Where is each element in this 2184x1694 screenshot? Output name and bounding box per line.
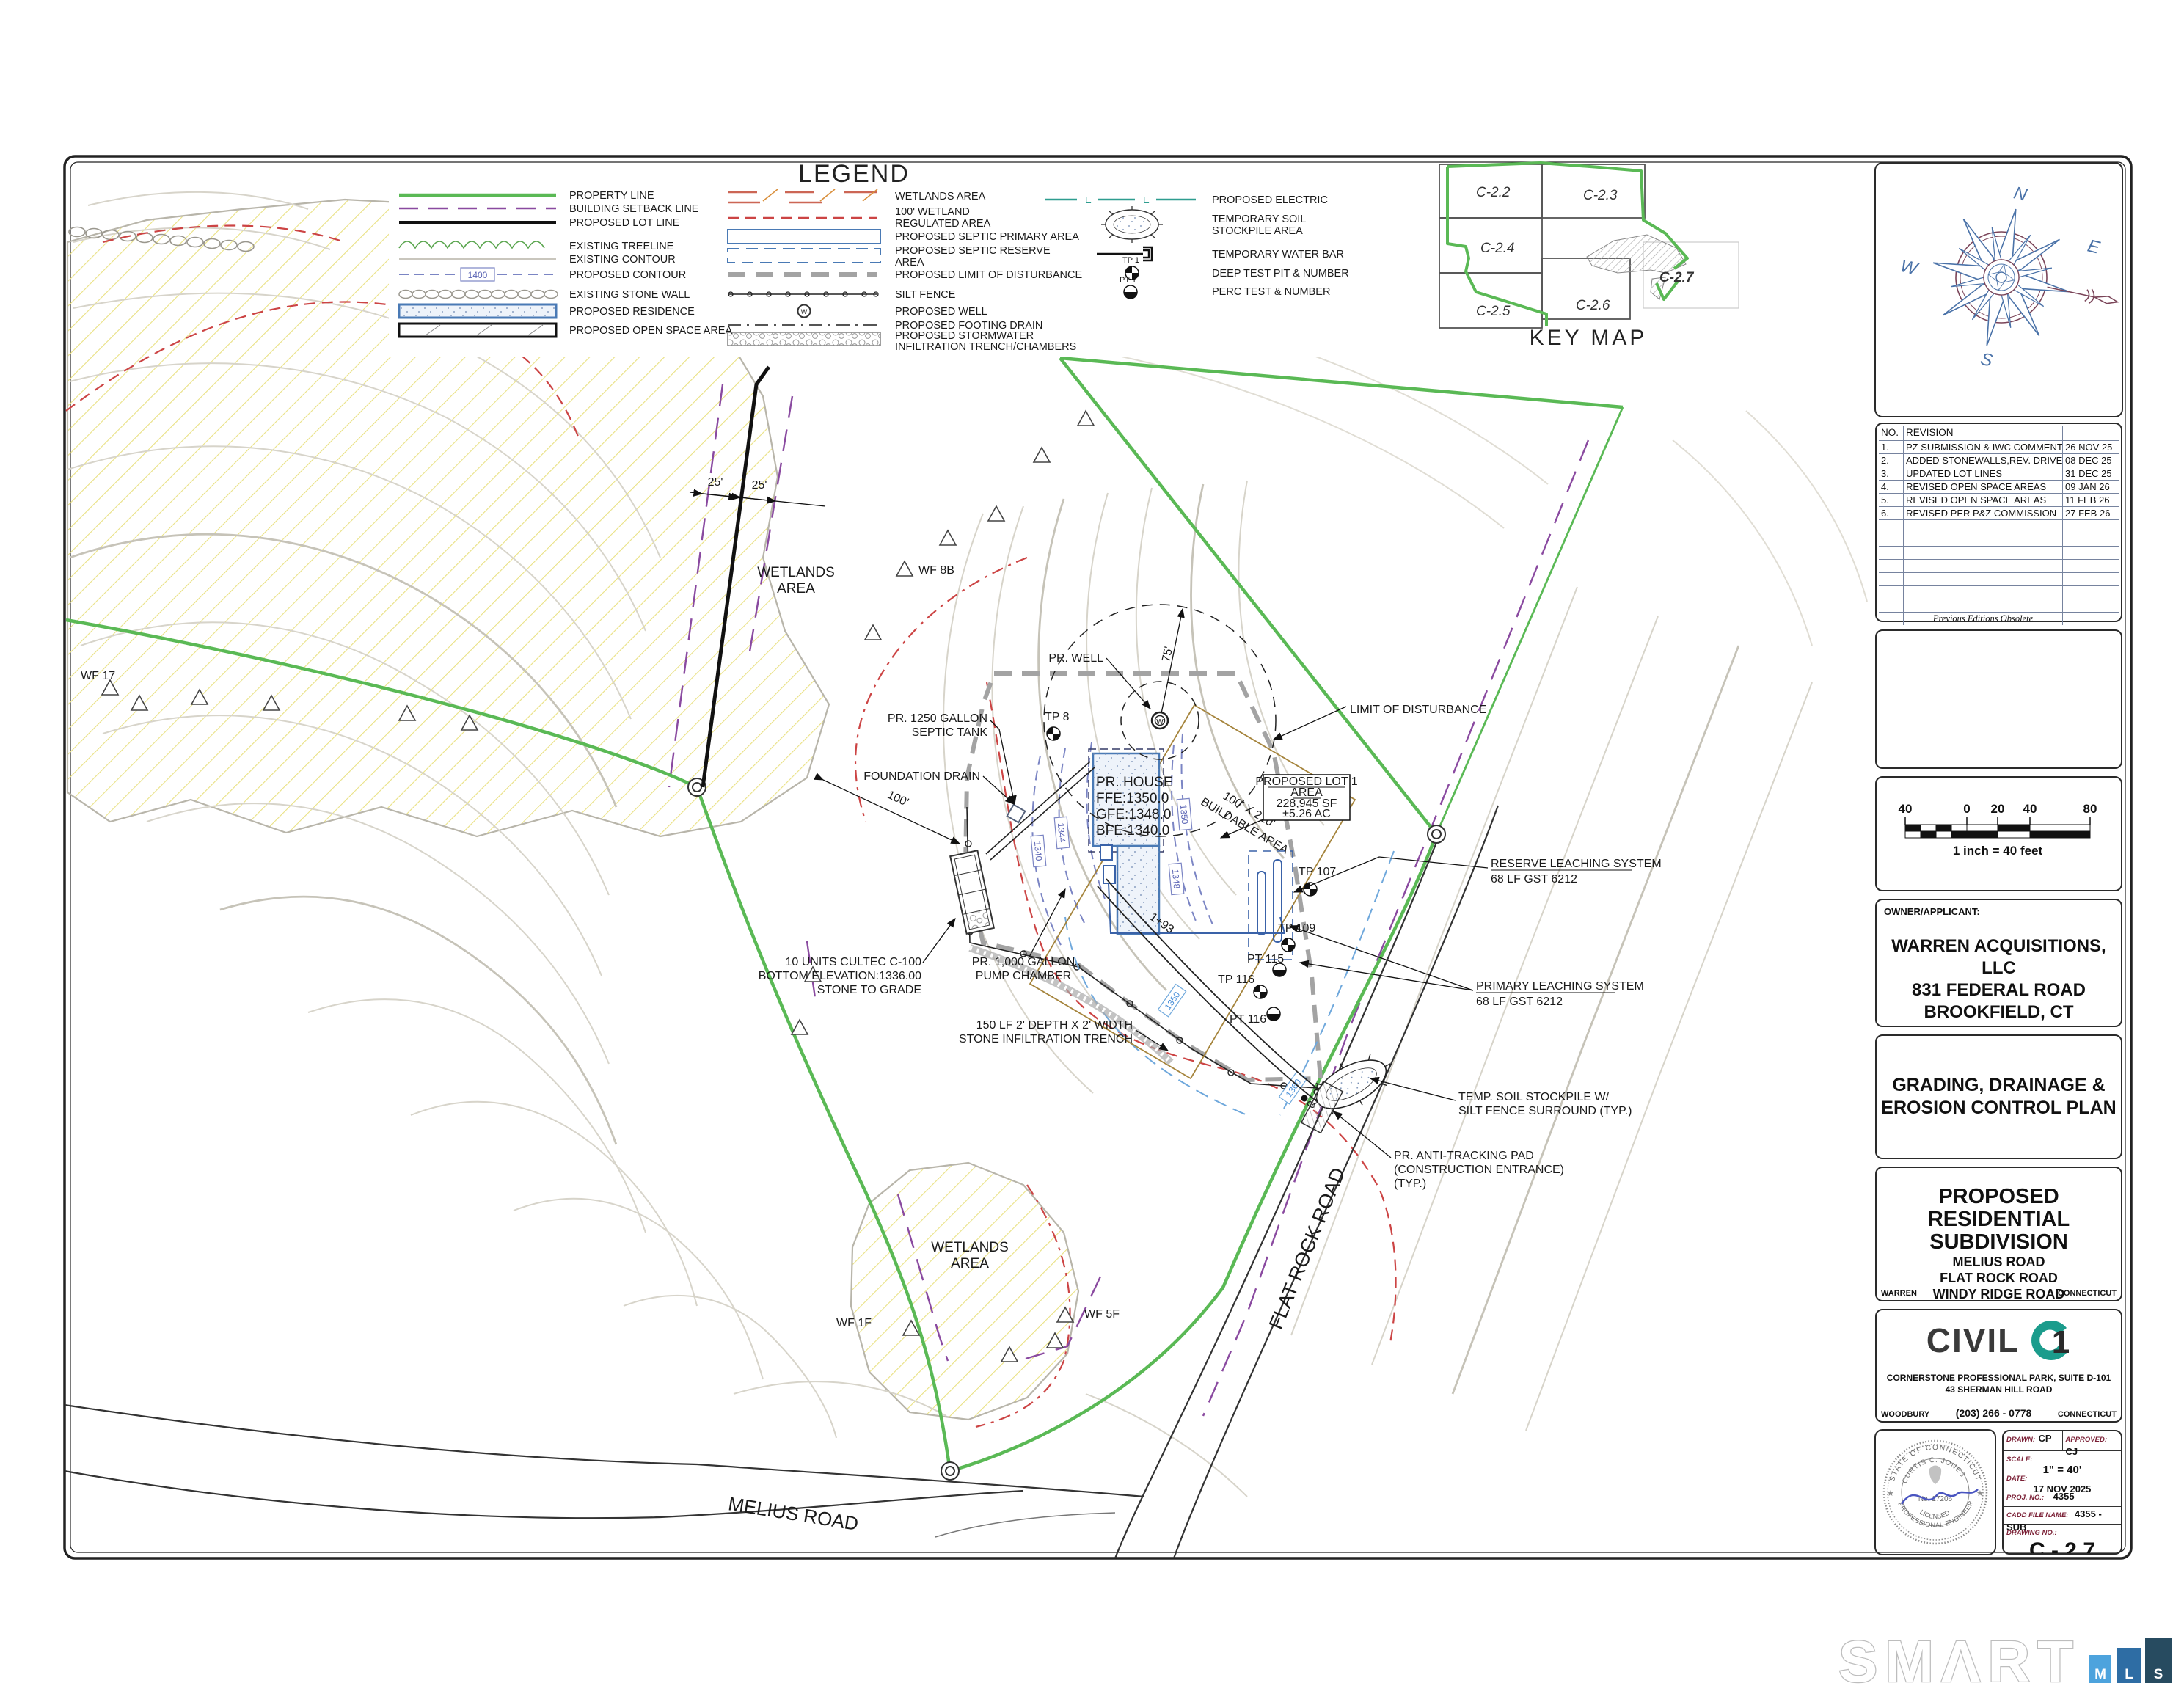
- legend-silt-fence: SILT FENCE: [895, 289, 956, 301]
- melius-road-label: MELIUS ROAD: [727, 1492, 861, 1535]
- legend: LEGEND 1400 PROP: [389, 160, 1416, 357]
- rev-desc: REVISED PER P&Z COMMISSION: [1904, 507, 2063, 520]
- antitrack-1: PR. ANTI-TRACKING PAD: [1394, 1150, 1534, 1162]
- legend-well: PROPOSED WELL: [895, 306, 987, 318]
- key-tile-c23: C-2.3: [1583, 188, 1618, 203]
- wetlands-label-1b: AREA: [777, 581, 815, 596]
- key-tile-c26: C-2.6: [1576, 298, 1610, 313]
- proj-value: 4355: [2053, 1491, 2075, 1502]
- septic-tank-label-2: SEPTIC TANK: [912, 726, 988, 739]
- trench-2: STONE INFILTRATION TRENCH: [959, 1033, 1133, 1045]
- compass-box: N S W E: [1875, 163, 2132, 417]
- dim-25-right: 25': [752, 479, 767, 492]
- legend-property-line: PROPERTY LINE: [569, 190, 654, 202]
- cultec-1: 10 UNITS CULTEC C-100: [785, 956, 921, 968]
- roads: [65, 806, 1498, 1558]
- rev-no: 5.: [1879, 494, 1904, 507]
- well-letter: W: [1156, 718, 1164, 726]
- key-map-title: KEY MAP: [1530, 326, 1648, 350]
- legend-septic-primary: PROPOSED SEPTIC PRIMARY AREA: [895, 231, 1079, 243]
- drawing-no-value: C - 2.7: [2006, 1538, 2118, 1555]
- legend-stockpile-2: STOCKPILE AREA: [1212, 225, 1303, 237]
- house-label: PR. HOUSE FFE:1350.0 GFE:1348.0 BFE:1340…: [1096, 775, 1173, 839]
- proj-label: PROJ. NO.:: [2006, 1494, 2044, 1502]
- firm-town: WOODBURY: [1881, 1410, 1929, 1419]
- firm-brand-word: CIVIL: [1926, 1321, 2020, 1360]
- project-line2: SUBDIVISION: [1877, 1231, 2121, 1254]
- legend-100-wetland-1: 100' WETLAND: [895, 206, 970, 218]
- scale-label: SCALE:: [2006, 1456, 2032, 1464]
- compass-w: W: [1899, 256, 1921, 280]
- rev-date: 27 FEB 26: [2063, 507, 2119, 520]
- key-tile-c22: C-2.2: [1476, 185, 1511, 200]
- flag-wf1f: WF 1F: [836, 1317, 872, 1329]
- smart-wordmark: SMΛRT: [1838, 1629, 2081, 1690]
- lod-label: LIMIT OF DISTURBANCE: [1350, 704, 1486, 716]
- legend-deep-test: DEEP TEST PIT & NUMBER: [1212, 268, 1349, 280]
- compass-e: E: [2086, 236, 2103, 258]
- svg-text:LICENSED: LICENSED: [1918, 1508, 1951, 1520]
- stockpile-2: SILT FENCE SURROUND (TYP.): [1458, 1105, 1632, 1117]
- legend-septic-reserve-2: AREA: [895, 257, 924, 269]
- legend-stormwater-2: INFILTRATION TRENCH/CHAMBERS: [895, 341, 1076, 353]
- owner-heading: OWNER/APPLICANT:: [1884, 906, 1980, 917]
- key-tile-c25: C-2.5: [1476, 304, 1511, 319]
- approved-label: APPROVED:: [2066, 1436, 2107, 1444]
- scale-caption: 1 inch = 40 feet: [1953, 844, 2043, 858]
- rev-desc: PZ SUBMISSION & IWC COMMENTS: [1904, 441, 2063, 454]
- foundation-drain-label: FOUNDATION DRAIN: [863, 770, 980, 783]
- scale-bar: 40 0 20 40 80 1 inch = 40 feet: [1877, 778, 2121, 890]
- septic-tank-symbol: [1007, 805, 1026, 823]
- wetlands-label-2a: WETLANDS: [931, 1240, 1009, 1255]
- cultec-chambers: [950, 850, 994, 934]
- firm-phone: (203) 266 - 0778: [1956, 1407, 2032, 1419]
- owner-city: BROOKFIELD, CT: [1877, 1001, 2121, 1023]
- septic-tank-label-1: PR. 1250 GALLON: [888, 712, 987, 725]
- owner-name: WARREN ACQUISITIONS, LLC: [1877, 935, 2121, 979]
- scale-tick-20: 20: [1991, 802, 2005, 816]
- project-town: WARREN: [1881, 1289, 1917, 1298]
- wetlands-label-1a: WETLANDS: [757, 565, 835, 580]
- legend-water-bar: TEMPORARY WATER BAR: [1212, 249, 1344, 260]
- well-radius-label: 75': [1160, 646, 1175, 663]
- firm-state: CONNECTICUT: [2058, 1410, 2117, 1419]
- legend-stormwater-1: PROPOSED STORMWATER: [895, 330, 1034, 342]
- sheet-title-line1: GRADING, DRAINAGE &: [1877, 1074, 2121, 1097]
- rev-date: 31 DEC 25: [2063, 467, 2119, 481]
- legend-perc-test: PERC TEST & NUMBER: [1212, 286, 1330, 298]
- rev-col-no: NO.: [1879, 426, 1904, 441]
- pump-1: PR. 1,000 GALLON: [972, 956, 1075, 968]
- house-name: PR. HOUSE: [1096, 775, 1173, 790]
- reserve-leach-2: 68 LF GST 6212: [1491, 873, 1577, 886]
- revision-table: NO. REVISION 1. PZ SUBMISSION & IWC COMM…: [1879, 426, 2119, 625]
- sheet-title-box: GRADING, DRAINAGE & EROSION CONTROL PLAN: [1875, 1034, 2122, 1159]
- contour-tag-1350: 1350: [1178, 804, 1190, 825]
- rev-no: 6.: [1879, 507, 1904, 520]
- rev-date: 08 DEC 25: [2063, 454, 2119, 467]
- project-state: CONNECTICUT: [2058, 1289, 2117, 1298]
- drawn-label: DRAWN:: [2006, 1436, 2035, 1444]
- stockpile-1: TEMP. SOIL STOCKPILE W/: [1458, 1091, 1610, 1103]
- legend-electric: PROPOSED ELECTRIC: [1212, 194, 1328, 206]
- rev-date: 11 FEB 26: [2063, 494, 2119, 507]
- drawing-no-label: DRAWING NO.:: [2006, 1529, 2057, 1537]
- scale-bar-box: 40 0 20 40 80 1 inch = 40 feet: [1875, 776, 2122, 891]
- pump-2: PUMP CHAMBER: [976, 970, 1071, 982]
- project-road-1: MELIUS ROAD: [1877, 1254, 2121, 1270]
- legend-residence: PROPOSED RESIDENCE: [569, 306, 695, 318]
- pt116-label: PT 116: [1230, 1013, 1266, 1026]
- flag-wf17: WF 17: [81, 670, 115, 682]
- legend-e1: E: [1085, 194, 1092, 205]
- legend-title: LEGEND: [798, 160, 910, 188]
- engineer-seal-box: STATE OF CONNECTICUT CURTIS C. JONES LIC…: [1875, 1430, 1995, 1555]
- scale-tick-40l: 40: [1899, 802, 1913, 816]
- legend-pr-contour: PROPOSED CONTOUR: [569, 269, 686, 281]
- seal-crest: [1929, 1466, 1941, 1485]
- flag-wf5f: WF 5F: [1084, 1308, 1120, 1321]
- rev-footer: Previous Editions Obsolete: [1904, 613, 2063, 625]
- mls-letter-m: M: [2094, 1667, 2106, 1682]
- legend-e2: E: [1143, 194, 1150, 205]
- civil1-number: 1: [2052, 1324, 2070, 1360]
- smartmls-logo: SMΛRT M L S: [1838, 1629, 2172, 1690]
- legend-open-space: PROPOSED OPEN SPACE AREA: [569, 325, 732, 337]
- trench-1: 150 LF 2' DEPTH X 2' WIDTH: [976, 1019, 1133, 1032]
- project-road-2: FLAT ROCK ROAD: [1877, 1270, 2121, 1286]
- wetlands-area-hatch: [67, 200, 1078, 1420]
- rev-col-desc: REVISION: [1904, 426, 2063, 441]
- legend-ex-contour: EXISTING CONTOUR: [569, 254, 676, 266]
- scale-bar-checker: [1905, 825, 2090, 838]
- antitrack-2: (CONSTRUCTION ENTRANCE): [1394, 1164, 1564, 1176]
- project-line1: PROPOSED RESIDENTIAL: [1877, 1186, 2121, 1231]
- cadd-label: CADD FILE NAME:: [2006, 1511, 2068, 1519]
- cultec-2: BOTTOM ELEVATION:1336.00: [759, 970, 921, 982]
- compass-n: N: [2012, 183, 2029, 206]
- legend-stone-wall: EXISTING STONE WALL: [569, 289, 690, 301]
- plan-sheet: 1340 1344 1348 1350 1350 1360 100' X 210…: [0, 0, 2184, 1690]
- firm-logo: CIVIL 1: [1877, 1318, 2121, 1363]
- legend-stockpile-1: TEMPORARY SOIL: [1212, 213, 1306, 225]
- tp116-label: TP 116: [1218, 974, 1254, 986]
- pr-well-label: PR. WELL: [1048, 652, 1103, 665]
- firm-addr2: 43 SHERMAN HILL ROAD: [1877, 1384, 2121, 1395]
- dim-100: 100': [885, 789, 910, 809]
- scale-tick-40r: 40: [2023, 802, 2037, 816]
- firm-addr1: CORNERSTONE PROFESSIONAL PARK, SUITE D-1…: [1877, 1372, 2121, 1384]
- legend-lot-line: PROPOSED LOT LINE: [569, 217, 680, 229]
- wetlands-label-2b: AREA: [951, 1256, 989, 1271]
- legend-pt-tag: PT 1: [1120, 276, 1136, 285]
- flat-rock-road-label: FLAT ROCK ROAD: [1265, 1164, 1350, 1332]
- drawn-value: CP: [2039, 1433, 2052, 1444]
- house-gfe: GFE:1348.0: [1096, 807, 1171, 822]
- legend-lod: PROPOSED LIMIT OF DISTURBANCE: [895, 269, 1082, 281]
- contour-tag-1348: 1348: [1170, 869, 1182, 889]
- scale-tick-0: 0: [1963, 802, 1970, 816]
- site-plan-map: 1340 1344 1348 1350 1350 1360 100' X 210…: [65, 192, 1867, 1558]
- seal-star-left: ★: [1887, 1489, 1894, 1498]
- tp8-label: TP 8: [1045, 711, 1070, 723]
- primary-leach-2: 68 LF GST 6212: [1476, 996, 1563, 1008]
- primary-leach-1: PRIMARY LEACHING SYSTEM: [1476, 980, 1644, 993]
- flag-wf8b: WF 8B: [918, 564, 954, 577]
- rev-desc: ADDED STONEWALLS,REV. DRIVEWAYS: [1904, 454, 2063, 467]
- mls-letter-s: S: [2154, 1667, 2163, 1682]
- rev-date: 09 JAN 26: [2063, 481, 2119, 494]
- compass-rose: [1918, 194, 2132, 370]
- revision-table-box: NO. REVISION 1. PZ SUBMISSION & IWC COMM…: [1875, 423, 2122, 622]
- title-block-box: DRAWN: CP APPROVED: CJ SCALE: 1" = 40' D…: [2002, 1430, 2122, 1555]
- contour-tag-1340: 1340: [1032, 841, 1044, 861]
- rev-desc: REVISED OPEN SPACE AREAS: [1904, 494, 2063, 507]
- rev-no: 3.: [1879, 467, 1904, 481]
- firm-brand-mark: 1: [2024, 1318, 2071, 1363]
- legend-treeline: EXISTING TREELINE: [569, 241, 674, 252]
- owner-box: OWNER/APPLICANT: WARREN ACQUISITIONS, LL…: [1875, 899, 2122, 1027]
- key-tile-c24: C-2.4: [1480, 241, 1514, 256]
- contour-tag-1344: 1344: [1056, 822, 1067, 843]
- rev-date: 26 NOV 25: [2063, 441, 2119, 454]
- owner-address: 831 FEDERAL ROAD: [1877, 979, 2121, 1001]
- lot-area-box: PROPOSED LOT 1 AREA 228,945 SF ±5.26 AC: [1255, 775, 1357, 820]
- legend-tp-tag: TP 1: [1122, 256, 1139, 265]
- legend-septic-reserve-1: PROPOSED SEPTIC RESERVE: [895, 245, 1051, 257]
- mls-letter-l: L: [2125, 1667, 2133, 1682]
- lot-line4: ±5.26 AC: [1282, 808, 1331, 820]
- firm-box: CIVIL 1 CORNERSTONE PROFESSIONAL PARK, S…: [1875, 1309, 2122, 1423]
- rev-desc: REVISED OPEN SPACE AREAS: [1904, 481, 2063, 494]
- legend-contour-tag: 1400: [468, 270, 488, 280]
- house-ffe: FFE:1350.0: [1096, 791, 1169, 806]
- key-tile-c27-current: C-2.7: [1659, 270, 1695, 285]
- seal-licensed: LICENSED: [1918, 1508, 1951, 1520]
- legend-well-letter: W: [801, 308, 808, 315]
- rev-desc: UPDATED LOT LINES: [1904, 467, 2063, 481]
- legend-wetlands: WETLANDS AREA: [895, 191, 986, 202]
- pt115-label: PT 115: [1247, 953, 1284, 965]
- compass-s: S: [1979, 349, 1995, 371]
- rev-no: 4.: [1879, 481, 1904, 494]
- legend-100-wetland-2: REGULATED AREA: [895, 218, 991, 230]
- antitrack-3: (TYP.): [1394, 1178, 1426, 1190]
- dim-25-left: 25': [708, 476, 723, 489]
- date-label: DATE:: [2006, 1475, 2027, 1483]
- legend-setback-line: BUILDING SETBACK LINE: [569, 203, 699, 215]
- scale-tick-80: 80: [2083, 802, 2097, 816]
- reserve-leach-1: RESERVE LEACHING SYSTEM: [1491, 858, 1662, 870]
- tp107-label: TP 107: [1299, 866, 1336, 878]
- sheet-title-line2: EROSION CONTROL PLAN: [1877, 1097, 2121, 1120]
- notes-box: [1875, 629, 2122, 769]
- key-map: C-2.2 C-2.3 C-2.4 C-2.5 C-2.6 C-2.7 KEY …: [1439, 163, 1739, 350]
- cultec-3: STONE TO GRADE: [817, 984, 921, 996]
- project-box: PROPOSED RESIDENTIAL SUBDIVISION MELIUS …: [1875, 1167, 2122, 1301]
- rev-no: 1.: [1879, 441, 1904, 454]
- property-corner-markers: [688, 778, 1445, 1480]
- rev-no: 2.: [1879, 454, 1904, 467]
